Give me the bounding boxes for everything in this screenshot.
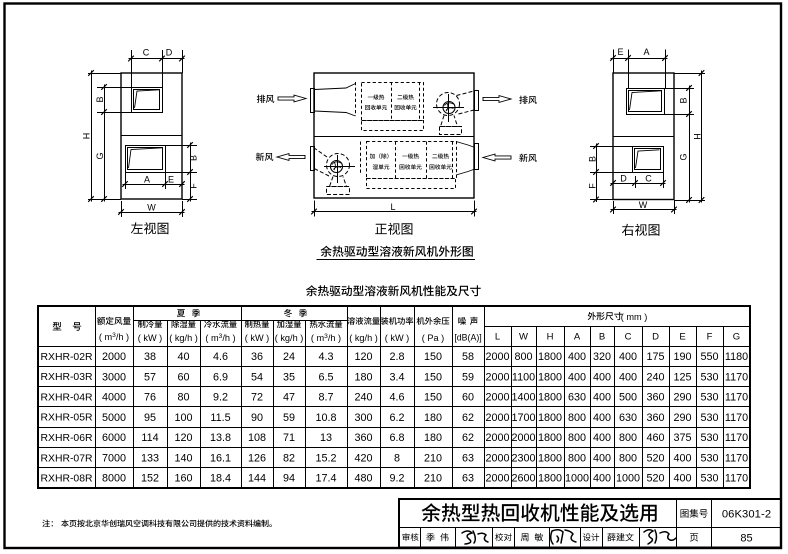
svg-text:290: 290 <box>673 392 691 404</box>
svg-text:( kW ): ( kW ) <box>138 333 163 343</box>
svg-text:800: 800 <box>619 452 637 464</box>
svg-text:400: 400 <box>673 473 691 485</box>
svg-text:85: 85 <box>740 532 752 544</box>
svg-text:144: 144 <box>248 473 266 485</box>
svg-text:8: 8 <box>394 452 400 464</box>
svg-text:11.5: 11.5 <box>210 412 230 424</box>
svg-text:800: 800 <box>568 412 586 424</box>
svg-text:152: 152 <box>141 473 159 485</box>
svg-text:520: 520 <box>646 452 664 464</box>
svg-text:300: 300 <box>354 412 372 424</box>
svg-text:C: C <box>625 332 632 343</box>
svg-text:F: F <box>189 183 199 189</box>
svg-text:480: 480 <box>354 473 372 485</box>
svg-text:2600: 2600 <box>511 473 535 485</box>
svg-text:36: 36 <box>251 351 263 363</box>
svg-text:D: D <box>652 332 659 343</box>
svg-text:8000: 8000 <box>102 473 126 485</box>
svg-text:C: C <box>645 174 652 184</box>
svg-text:40: 40 <box>177 351 189 363</box>
svg-text:9.2: 9.2 <box>389 473 404 485</box>
svg-text:D: D <box>166 48 173 58</box>
svg-text:16.1: 16.1 <box>210 452 231 464</box>
svg-text:E: E <box>679 332 685 343</box>
svg-text:E: E <box>168 175 174 185</box>
svg-text:1170: 1170 <box>725 473 748 485</box>
svg-text:E: E <box>617 47 623 57</box>
svg-text:400: 400 <box>568 351 586 363</box>
svg-text:290: 290 <box>673 412 691 424</box>
svg-text:RXHR-05R: RXHR-05R <box>41 413 93 424</box>
svg-text:8.7: 8.7 <box>318 392 333 404</box>
svg-text:630: 630 <box>619 412 637 424</box>
svg-text:360: 360 <box>354 432 372 444</box>
svg-text:7000: 7000 <box>102 452 126 464</box>
svg-text:530: 530 <box>700 371 718 383</box>
svg-text:6000: 6000 <box>102 432 126 444</box>
svg-text:1180: 1180 <box>725 351 748 363</box>
svg-text:400: 400 <box>593 452 611 464</box>
svg-text:800: 800 <box>568 452 586 464</box>
svg-text:24: 24 <box>283 351 295 363</box>
svg-text:G: G <box>679 153 689 160</box>
svg-text:150: 150 <box>424 351 442 363</box>
svg-text:RXHR-04R: RXHR-04R <box>41 392 93 403</box>
svg-text:150: 150 <box>424 392 442 404</box>
svg-text:76: 76 <box>144 392 156 404</box>
svg-text:108: 108 <box>248 432 266 444</box>
svg-text:2000: 2000 <box>485 452 509 464</box>
svg-text:120: 120 <box>174 432 192 444</box>
svg-text:A: A <box>144 175 150 185</box>
svg-text:57: 57 <box>144 371 156 383</box>
svg-text:126: 126 <box>248 452 266 464</box>
svg-text:1170: 1170 <box>725 412 748 424</box>
svg-text:18.4: 18.4 <box>210 473 231 485</box>
svg-text:375: 375 <box>673 432 691 444</box>
svg-text:63: 63 <box>462 473 474 485</box>
svg-text:4.6: 4.6 <box>389 392 404 404</box>
svg-text:1700: 1700 <box>511 412 535 424</box>
svg-text:( Pa ): ( Pa ) <box>422 333 444 343</box>
svg-text:2000: 2000 <box>485 473 509 485</box>
svg-text:63: 63 <box>462 452 474 464</box>
svg-text:530: 530 <box>700 432 718 444</box>
svg-text:1400: 1400 <box>511 392 535 404</box>
svg-text:94: 94 <box>283 473 295 485</box>
svg-text:400: 400 <box>568 371 586 383</box>
svg-text:2000: 2000 <box>485 371 509 383</box>
svg-text:RXHR-07R: RXHR-07R <box>41 453 93 464</box>
svg-text:71: 71 <box>283 432 295 444</box>
svg-text:1800: 1800 <box>538 452 562 464</box>
svg-text:G: G <box>733 332 740 343</box>
svg-text:1800: 1800 <box>538 351 562 363</box>
svg-text:( kW ): ( kW ) <box>385 333 410 343</box>
svg-text:400: 400 <box>593 473 611 485</box>
svg-text:10.8: 10.8 <box>315 412 336 424</box>
svg-text:17.4: 17.4 <box>315 473 336 485</box>
svg-text:125: 125 <box>673 371 691 383</box>
svg-text:180: 180 <box>354 371 372 383</box>
svg-text:1170: 1170 <box>725 452 748 464</box>
svg-text:160: 160 <box>174 473 192 485</box>
svg-text:2000: 2000 <box>485 412 509 424</box>
svg-text:100: 100 <box>174 412 192 424</box>
svg-text:RXHR-02R: RXHR-02R <box>41 352 93 363</box>
svg-text:H: H <box>547 332 554 343</box>
svg-text:400: 400 <box>673 452 691 464</box>
svg-text:1000: 1000 <box>565 473 589 485</box>
svg-text:B: B <box>189 155 199 161</box>
svg-text:210: 210 <box>424 452 442 464</box>
svg-text:59: 59 <box>283 412 295 424</box>
svg-text:W: W <box>639 200 648 210</box>
svg-text:2000: 2000 <box>485 351 509 363</box>
svg-text:2.8: 2.8 <box>389 351 404 363</box>
svg-text:1800: 1800 <box>538 412 562 424</box>
svg-text:80: 80 <box>177 392 189 404</box>
svg-text:5000: 5000 <box>102 412 126 424</box>
svg-text:133: 133 <box>141 452 159 464</box>
svg-text:190: 190 <box>673 351 691 363</box>
svg-text:150: 150 <box>424 371 442 383</box>
svg-text:530: 530 <box>700 473 718 485</box>
svg-text:62: 62 <box>462 432 474 444</box>
svg-text:W: W <box>147 203 156 213</box>
svg-text:13.8: 13.8 <box>210 432 231 444</box>
svg-text:59: 59 <box>462 371 474 383</box>
svg-text:13: 13 <box>320 432 332 444</box>
svg-text:400: 400 <box>593 392 611 404</box>
svg-text:400: 400 <box>593 412 611 424</box>
svg-text:RXHR-03R: RXHR-03R <box>41 372 93 383</box>
svg-text:38: 38 <box>144 351 156 363</box>
svg-text:54: 54 <box>251 371 263 383</box>
svg-text:D: D <box>620 174 627 184</box>
svg-text:62: 62 <box>462 412 474 424</box>
svg-text:06K301-2: 06K301-2 <box>722 509 771 521</box>
svg-text:530: 530 <box>700 452 718 464</box>
svg-text:A: A <box>643 47 649 57</box>
svg-text:60: 60 <box>462 392 474 404</box>
svg-text:B: B <box>95 96 105 102</box>
svg-text:F: F <box>588 183 598 189</box>
svg-text:1170: 1170 <box>725 392 748 404</box>
svg-text:B: B <box>588 156 598 162</box>
svg-text:1170: 1170 <box>725 371 748 383</box>
svg-text:W: W <box>519 332 528 343</box>
svg-text:800: 800 <box>514 351 532 363</box>
svg-text:180: 180 <box>424 412 442 424</box>
svg-text:520: 520 <box>646 473 664 485</box>
svg-text:90: 90 <box>251 412 263 424</box>
svg-text:72: 72 <box>251 392 263 404</box>
svg-text:2000: 2000 <box>485 392 509 404</box>
svg-text:B: B <box>599 332 605 343</box>
svg-text:240: 240 <box>646 371 664 383</box>
svg-text:1800: 1800 <box>538 473 562 485</box>
svg-text:4000: 4000 <box>102 392 126 404</box>
svg-text:500: 500 <box>619 392 637 404</box>
svg-text:530: 530 <box>700 412 718 424</box>
svg-text:400: 400 <box>619 351 637 363</box>
svg-text:3.4: 3.4 <box>389 371 404 383</box>
svg-text:( kg/h ): ( kg/h ) <box>169 333 198 343</box>
svg-text:630: 630 <box>568 392 586 404</box>
svg-text:360: 360 <box>646 412 664 424</box>
svg-text:[dB(A)]: [dB(A)] <box>454 333 481 343</box>
svg-text:1000: 1000 <box>616 473 640 485</box>
svg-text:460: 460 <box>646 432 664 444</box>
svg-text:114: 114 <box>141 432 158 444</box>
svg-text:4.3: 4.3 <box>318 351 333 363</box>
svg-text:( kg/h ): ( kg/h ) <box>349 333 378 343</box>
svg-text:A: A <box>574 332 581 343</box>
svg-text:RXHR-08R: RXHR-08R <box>41 474 93 485</box>
svg-text:35: 35 <box>283 371 295 383</box>
svg-text:2300: 2300 <box>511 452 535 464</box>
svg-text:1170: 1170 <box>725 432 748 444</box>
svg-text:800: 800 <box>619 432 637 444</box>
svg-text:( mm ): ( mm ) <box>621 312 648 322</box>
svg-text:( kW ): ( kW ) <box>245 333 270 343</box>
svg-text:G: G <box>95 152 105 159</box>
svg-text:120: 120 <box>354 351 372 363</box>
svg-text:C: C <box>143 48 150 58</box>
svg-text:F: F <box>707 332 713 343</box>
svg-text:9.2: 9.2 <box>213 392 228 404</box>
svg-text:6.2: 6.2 <box>389 412 404 424</box>
svg-text:1800: 1800 <box>538 432 562 444</box>
svg-text:2000: 2000 <box>485 432 509 444</box>
svg-text:15.2: 15.2 <box>315 452 336 464</box>
svg-text:800: 800 <box>568 432 586 444</box>
svg-text:240: 240 <box>354 392 372 404</box>
svg-text:400: 400 <box>593 371 611 383</box>
svg-text:6.9: 6.9 <box>213 371 228 383</box>
svg-text:3000: 3000 <box>102 371 126 383</box>
svg-text:B: B <box>679 97 689 103</box>
svg-text:4.6: 4.6 <box>213 351 228 363</box>
svg-text:82: 82 <box>283 452 295 464</box>
svg-text:60: 60 <box>177 371 189 383</box>
svg-text:320: 320 <box>593 351 611 363</box>
svg-text:6.8: 6.8 <box>389 432 404 444</box>
svg-text:360: 360 <box>646 392 664 404</box>
svg-text:95: 95 <box>144 412 156 424</box>
svg-text:58: 58 <box>462 351 474 363</box>
svg-text:47: 47 <box>283 392 295 404</box>
svg-text:6.5: 6.5 <box>318 371 333 383</box>
svg-text:400: 400 <box>593 432 611 444</box>
svg-text:140: 140 <box>174 452 192 464</box>
svg-text:H: H <box>693 133 703 140</box>
svg-text:1800: 1800 <box>538 371 562 383</box>
svg-text:550: 550 <box>700 351 718 363</box>
svg-text:420: 420 <box>354 452 372 464</box>
svg-text:2000: 2000 <box>102 351 126 363</box>
svg-text:( kg/h ): ( kg/h ) <box>275 333 304 343</box>
svg-text:175: 175 <box>646 351 664 363</box>
svg-text:L: L <box>495 332 500 343</box>
svg-text:L: L <box>390 202 395 212</box>
svg-text:1800: 1800 <box>538 392 562 404</box>
svg-text:210: 210 <box>424 473 442 485</box>
svg-text:530: 530 <box>700 392 718 404</box>
svg-text:1100: 1100 <box>512 371 535 383</box>
svg-text:180: 180 <box>424 432 442 444</box>
svg-text:400: 400 <box>619 371 637 383</box>
svg-text:H: H <box>82 133 92 140</box>
svg-text:RXHR-06R: RXHR-06R <box>41 433 93 444</box>
svg-text:2000: 2000 <box>511 432 535 444</box>
